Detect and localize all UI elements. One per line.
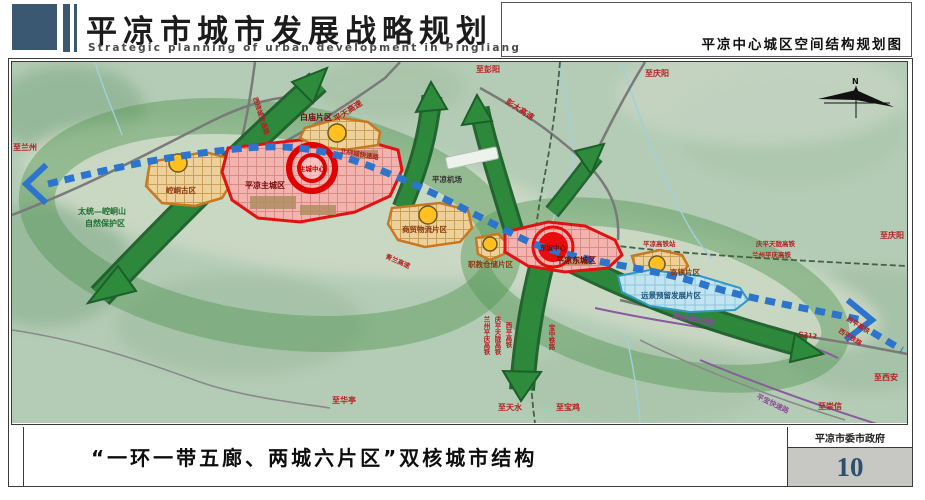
agency-label: 平凉市委市政府 <box>788 427 912 448</box>
dest-lanzhou: 至兰州 <box>13 142 37 152</box>
rail-label-baozhong-vertical: 宝中铁路 <box>547 323 556 352</box>
main-core-label: 主城中心 <box>299 164 326 173</box>
dest-qingyang-right: 至庆阳 <box>880 230 904 240</box>
planning-map: N 崆峒古区 平凉主城区 主城中心 白庙片区 商贸物流片区 职教仓储片区 平凉东… <box>11 61 908 425</box>
document-frame: N 崆峒古区 平凉主城区 主城中心 白庙片区 商贸物流片区 职教仓储片区 平凉东… <box>8 58 913 487</box>
zone-vocational-label: 职教仓储片区 <box>468 259 513 269</box>
footer-left-rule <box>23 427 24 486</box>
dest-pengyang: 至彭阳 <box>476 64 500 74</box>
rail-label-qptl-vertical: 庆平天陇高铁 <box>493 315 502 357</box>
nature-reserve-label-1: 太统—崆峒山 <box>77 206 126 216</box>
airport-label: 平凉机场 <box>432 174 462 184</box>
header-accent-bar-thin <box>74 4 77 52</box>
hsr-station-label: 平凉高铁站 <box>643 239 676 248</box>
zone-reserve-label: 远景预留发展片区 <box>641 290 701 300</box>
dest-tianshui: 至天水 <box>498 402 523 412</box>
compass-north-label: N <box>852 77 859 86</box>
zone-kongtong-label: 崆峒古区 <box>166 185 196 195</box>
nature-reserve-label-2: 自然保护区 <box>85 218 125 228</box>
node-vocational <box>483 237 497 251</box>
footer: “一环一带五廊、两城六片区”双核城市结构 平凉市委市政府 10 <box>9 427 912 486</box>
structure-caption: “一环一带五廊、两城六片区”双核城市结构 <box>9 427 787 486</box>
zone-kongtong <box>146 152 232 206</box>
map-title-box: 平凉中心城区空间结构规划图 <box>501 2 912 57</box>
page-number: 10 <box>788 448 912 486</box>
zone-hsr-label: 高铁片区 <box>670 267 700 277</box>
zone-east-city-label: 平凉东城区 <box>556 255 596 265</box>
node-baimiao <box>328 124 346 142</box>
dest-baoji: 至宝鸡 <box>556 402 580 412</box>
planning-map-svg: N 崆峒古区 平凉主城区 主城中心 白庙片区 商贸物流片区 职教仓储片区 平凉东… <box>12 62 907 423</box>
page-subtitle-english: Strategic planning of urban development … <box>88 42 521 54</box>
rail-label-lzpq: 兰州平庆高铁 <box>752 250 792 259</box>
map-title: 平凉中心城区空间结构规划图 <box>702 33 904 53</box>
dest-xian: 至西安 <box>874 372 898 382</box>
zone-baimiao-label: 白庙片区 <box>300 112 332 122</box>
node-trade <box>419 206 437 224</box>
rail-label-qptl: 庆平天陇高铁 <box>755 239 796 248</box>
rail-label-xiping-vertical: 西平高铁 <box>504 322 513 350</box>
dest-chongxin: 至崇信 <box>818 401 842 411</box>
footer-right-block: 平凉市委市政府 10 <box>787 427 912 486</box>
dest-qingyang-top: 至庆阳 <box>645 68 669 78</box>
dest-huating: 至华亭 <box>332 395 356 405</box>
zone-main-city-label: 平凉主城区 <box>245 180 285 190</box>
zone-trade-label: 商贸物流片区 <box>402 224 447 234</box>
rail-label-lzpq-vertical: 兰州平庆高铁 <box>482 315 491 357</box>
header-accent-bar <box>63 4 70 52</box>
header-logo <box>12 4 57 50</box>
east-core-label: 东城中心 <box>540 243 567 252</box>
